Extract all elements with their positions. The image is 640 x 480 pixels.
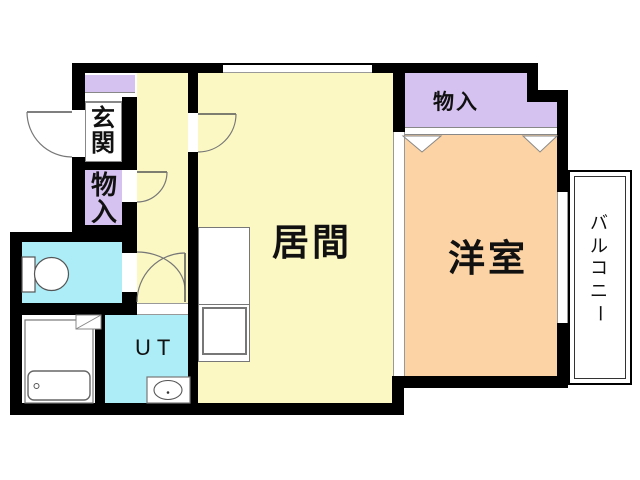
entrance-label-char2: 関 xyxy=(91,131,115,156)
closet-door-arc xyxy=(137,172,167,202)
balcony-label-char4: ニ xyxy=(590,280,608,303)
utility-door-arc xyxy=(137,253,185,302)
toilet-door-arc xyxy=(137,252,185,290)
closet-door-mark-left xyxy=(403,136,441,152)
living-room-label: 居間 xyxy=(272,224,352,263)
living-door-arc xyxy=(198,114,236,152)
balcony-label-char2: ル xyxy=(590,235,608,258)
balcony-label-char5: ー xyxy=(588,304,611,322)
closet-left-label: 物 入 xyxy=(90,172,118,227)
bathtub-drain xyxy=(34,384,39,389)
western-room-label: 洋室 xyxy=(448,240,528,279)
balcony-label-char1: バ xyxy=(590,212,608,235)
sink-drain xyxy=(167,391,170,394)
entrance-label-char1: 玄 xyxy=(91,106,115,131)
sink-bowl xyxy=(154,381,182,400)
closet-left-label-char2: 入 xyxy=(91,199,117,226)
entrance-label: 玄 関 xyxy=(89,106,117,156)
floorplan: 玄 関 物 入 物入 居間 洋室 UT バ ル コ ニ ー xyxy=(0,0,640,480)
entrance-door-arc xyxy=(27,112,72,157)
closet-left-label-char1: 物 xyxy=(91,172,117,199)
toilet-bowl xyxy=(35,258,69,291)
balcony-label-char3: コ xyxy=(590,257,608,280)
closet-door-mark-right xyxy=(523,136,557,152)
utility-label: UT xyxy=(135,336,176,359)
toilet-tank xyxy=(22,257,35,292)
balcony-label: バ ル コ ニ ー xyxy=(588,212,610,325)
closet-top-label: 物入 xyxy=(433,92,479,114)
